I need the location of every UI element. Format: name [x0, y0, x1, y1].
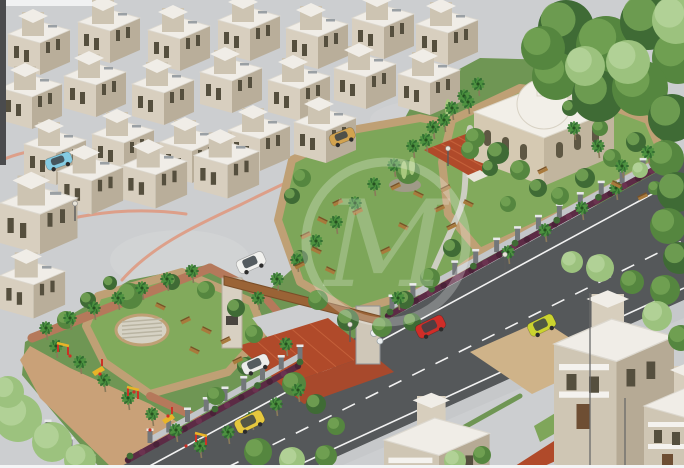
- window: [446, 79, 450, 90]
- window: [234, 164, 238, 176]
- window: [200, 168, 205, 181]
- tree-highlight: [81, 293, 91, 303]
- palm-crown: [411, 144, 414, 147]
- pillar-cap: [240, 376, 247, 379]
- tree-highlight: [208, 388, 219, 399]
- lamp-head: [348, 322, 353, 327]
- tree-highlight: [523, 28, 550, 55]
- window: [300, 134, 305, 146]
- roof-stair: [50, 192, 61, 195]
- pillar-cap: [640, 158, 647, 161]
- play-equipment-dot: [184, 444, 187, 447]
- window: [464, 29, 468, 40]
- window: [274, 92, 279, 104]
- arch-window: [520, 144, 527, 160]
- hedge-bush: [566, 213, 572, 219]
- palm-crown: [450, 106, 453, 109]
- window: [234, 36, 239, 48]
- window: [172, 171, 176, 183]
- window: [248, 77, 252, 88]
- tree-highlight: [567, 48, 592, 73]
- window: [211, 172, 216, 185]
- palm-crown: [466, 100, 469, 103]
- tree-highlight: [198, 282, 209, 293]
- hedge-shrub: [127, 453, 134, 460]
- window: [70, 88, 75, 100]
- pillar-cap: [45, 420, 52, 423]
- gate-statue: [377, 338, 383, 344]
- window: [154, 42, 159, 54]
- window: [276, 135, 280, 146]
- window: [454, 32, 458, 43]
- wall-pillar: [185, 409, 190, 422]
- play-equipment-dot: [98, 372, 101, 375]
- township-aerial-rendering: M: [0, 0, 684, 468]
- window: [94, 38, 99, 50]
- pillar-cap: [598, 181, 605, 184]
- hedge-bush: [153, 441, 159, 447]
- window: [627, 369, 636, 387]
- tree-highlight: [501, 197, 511, 207]
- window: [30, 156, 35, 168]
- balcony-rail: [559, 364, 609, 370]
- page-margin-top: [6, 0, 92, 6]
- tree-highlight: [246, 326, 257, 337]
- hedge-bush: [266, 378, 272, 384]
- palm-crown: [150, 412, 153, 415]
- hedge-bush: [196, 418, 202, 424]
- tree-highlight: [562, 252, 576, 266]
- roof-stair: [268, 121, 277, 124]
- arch-window: [484, 130, 491, 146]
- window: [112, 81, 116, 92]
- hedge-shrub: [512, 240, 519, 247]
- hedge-bush: [482, 259, 488, 265]
- wall-pillar: [148, 430, 153, 443]
- window: [48, 213, 53, 227]
- palm-crown: [226, 430, 229, 433]
- lamp-head: [503, 252, 508, 257]
- tree-highlight: [104, 277, 113, 286]
- wall-pillar: [515, 228, 520, 241]
- window: [40, 160, 45, 172]
- palm-crown: [92, 306, 95, 309]
- watermark-monogram: M: [323, 176, 451, 315]
- tree-highlight: [650, 96, 680, 126]
- play-equipment-dot: [148, 428, 151, 431]
- tree-highlight: [633, 163, 643, 173]
- roof-stair: [374, 59, 383, 62]
- tree-highlight: [445, 451, 459, 465]
- tree-highlight: [34, 424, 59, 449]
- lamp-head: [446, 146, 451, 151]
- window: [186, 38, 190, 49]
- window: [400, 23, 404, 34]
- tree-highlight: [307, 395, 319, 407]
- roof-stair: [240, 63, 249, 66]
- balcony-rail: [388, 458, 432, 464]
- tree-highlight: [644, 302, 663, 321]
- tree-highlight: [228, 300, 239, 311]
- tree-highlight: [474, 447, 485, 458]
- palm-crown: [165, 277, 168, 280]
- palm-crown: [44, 326, 47, 329]
- window: [84, 34, 89, 46]
- hedge-bush: [139, 449, 145, 455]
- window: [14, 46, 19, 58]
- window: [404, 86, 409, 98]
- hedge-shrub: [254, 382, 261, 389]
- window: [238, 80, 242, 91]
- tree-highlight: [652, 276, 671, 295]
- palm-crown: [198, 444, 201, 447]
- tree-highlight: [462, 142, 473, 153]
- window: [60, 209, 65, 223]
- watermark-layer: M: [306, 162, 466, 322]
- window: [206, 84, 211, 96]
- window: [170, 92, 174, 103]
- wall-pillar: [204, 399, 209, 412]
- window: [40, 284, 44, 296]
- tree-highlight: [483, 161, 493, 171]
- wall-pillar: [473, 250, 478, 263]
- pillar-cap: [493, 238, 500, 241]
- palm-crown: [543, 228, 546, 231]
- tree-highlight: [608, 42, 635, 69]
- hedge-shrub: [297, 359, 304, 366]
- roof-stair: [456, 15, 465, 18]
- hedge-shrub: [553, 217, 560, 224]
- pillar-cap: [184, 408, 191, 411]
- window: [647, 362, 656, 380]
- window: [324, 36, 328, 47]
- wall-pillar: [279, 357, 284, 370]
- tree-highlight: [530, 180, 541, 191]
- window: [130, 142, 134, 153]
- palm-crown: [580, 206, 583, 209]
- palm-crown: [275, 277, 278, 280]
- window: [350, 84, 355, 96]
- window: [108, 177, 112, 189]
- window: [116, 30, 120, 41]
- tree-highlight: [621, 271, 636, 286]
- window: [310, 138, 315, 150]
- play-equipment-dot: [166, 414, 169, 417]
- wall-pillar: [557, 205, 562, 218]
- door: [577, 404, 591, 429]
- pillar-cap: [514, 226, 521, 229]
- palm-crown: [140, 286, 143, 289]
- window: [80, 92, 85, 104]
- window: [48, 93, 52, 104]
- window: [266, 138, 270, 149]
- roof-stair: [188, 21, 197, 24]
- window: [567, 374, 577, 390]
- tree-highlight: [66, 445, 86, 465]
- pillar-cap: [472, 249, 479, 252]
- window: [390, 26, 394, 37]
- palm-crown: [116, 296, 119, 299]
- tree-highlight: [576, 169, 588, 181]
- window: [162, 174, 166, 186]
- roof-stair: [118, 13, 127, 16]
- wall-pillar: [599, 182, 604, 195]
- palm-crown: [274, 402, 277, 405]
- window: [8, 218, 14, 233]
- window: [139, 182, 144, 195]
- window: [414, 90, 419, 102]
- balcony-rail: [559, 392, 609, 398]
- window: [17, 292, 22, 305]
- tree-highlight: [652, 209, 674, 231]
- site-plan-canvas: M: [0, 0, 684, 468]
- window: [292, 40, 297, 52]
- palm-crown: [295, 258, 298, 261]
- window: [436, 82, 440, 93]
- tree-highlight: [665, 243, 684, 263]
- pillar-cap: [297, 345, 304, 348]
- balcony-rail: [648, 422, 684, 427]
- window: [196, 35, 200, 46]
- tree-highlight: [627, 133, 639, 145]
- hedge-bush: [238, 394, 244, 400]
- tree-highlight: [552, 188, 563, 199]
- window: [316, 85, 320, 96]
- tree-highlight: [593, 121, 603, 131]
- window: [50, 281, 54, 293]
- hedge-shrub: [212, 406, 219, 413]
- window: [432, 40, 437, 52]
- palm-crown: [431, 125, 434, 128]
- wall-pillar: [298, 346, 303, 359]
- window: [98, 180, 102, 192]
- window: [164, 46, 169, 58]
- window: [148, 100, 153, 112]
- palm-crown: [442, 118, 445, 121]
- window: [24, 50, 29, 62]
- hedge-bush: [524, 236, 530, 242]
- window: [422, 36, 427, 48]
- tree-highlight: [245, 439, 262, 456]
- tree-highlight: [280, 448, 296, 464]
- window: [46, 42, 50, 53]
- window: [672, 432, 680, 445]
- window: [256, 28, 260, 39]
- window: [38, 96, 42, 107]
- palm-crown: [256, 296, 259, 299]
- palm-crown: [620, 164, 623, 167]
- wall-pillar: [494, 239, 499, 252]
- window: [20, 223, 26, 238]
- window: [16, 104, 21, 116]
- window: [358, 30, 363, 42]
- tree-highlight: [285, 189, 295, 199]
- tree-highlight: [466, 129, 478, 141]
- gate-sign: [226, 316, 238, 325]
- pillar-cap: [222, 387, 229, 390]
- palm-crown: [476, 82, 479, 85]
- window: [306, 88, 310, 99]
- window: [180, 89, 184, 100]
- window: [302, 44, 307, 56]
- tree-highlight: [604, 150, 615, 161]
- play-equipment-dot: [68, 354, 71, 357]
- roof-stair: [258, 11, 267, 14]
- roof-stair: [164, 156, 173, 159]
- window: [340, 80, 345, 92]
- window: [138, 96, 143, 108]
- roof-stair: [132, 125, 141, 128]
- palm-crown: [572, 126, 575, 129]
- lamp-head: [73, 201, 78, 206]
- tree-highlight: [488, 143, 502, 157]
- tree-highlight: [649, 182, 658, 191]
- wall-pillar: [241, 378, 246, 391]
- window: [216, 88, 221, 100]
- window: [108, 150, 113, 162]
- window: [368, 34, 373, 46]
- tree-highlight: [328, 418, 339, 429]
- window: [224, 32, 229, 44]
- roof-stair: [308, 71, 317, 74]
- tree-highlight: [294, 170, 305, 181]
- palm-crown: [68, 316, 71, 319]
- palm-crown: [102, 378, 105, 381]
- palm-crown: [296, 388, 299, 391]
- palm-crown: [284, 342, 287, 345]
- palm-crown: [596, 144, 599, 147]
- roof-stair: [172, 75, 181, 78]
- palm-crown: [314, 239, 317, 242]
- window: [382, 73, 386, 84]
- window: [334, 33, 338, 44]
- scan-edge-left: [0, 0, 6, 165]
- window: [654, 430, 662, 443]
- roof-stair: [236, 146, 245, 149]
- roof-stair: [438, 65, 447, 68]
- window: [6, 100, 11, 112]
- window: [102, 84, 106, 95]
- roof-stair: [100, 162, 109, 165]
- play-equipment-dot: [132, 390, 135, 393]
- window: [284, 96, 289, 108]
- hedge-bush: [224, 402, 230, 408]
- window: [6, 288, 11, 301]
- roof-stair: [326, 19, 335, 22]
- pillar-cap: [451, 260, 458, 263]
- hedge-bush: [181, 425, 187, 431]
- palm-crown: [78, 360, 81, 363]
- palm-crown: [190, 269, 193, 272]
- tree-highlight: [659, 174, 684, 199]
- palm-crown: [174, 428, 177, 431]
- palm-crown: [424, 138, 427, 141]
- arch-window: [556, 142, 563, 158]
- window: [372, 76, 376, 87]
- palm-crown: [126, 396, 129, 399]
- tree-highlight: [587, 255, 604, 272]
- tree-highlight: [316, 446, 330, 460]
- palm-crown: [646, 150, 649, 153]
- roof-stair: [48, 25, 57, 28]
- window: [128, 178, 133, 191]
- hedge-shrub: [595, 194, 602, 201]
- window: [126, 27, 130, 38]
- window: [244, 161, 248, 173]
- pillar-cap: [577, 192, 584, 195]
- roof-stair: [42, 266, 51, 269]
- roof-stair: [334, 113, 343, 116]
- roof-stair: [104, 67, 113, 70]
- window: [266, 25, 270, 36]
- pillar-cap: [278, 355, 285, 358]
- roof-stair: [392, 9, 401, 12]
- hedge-shrub: [470, 263, 477, 270]
- pillar-cap: [535, 215, 542, 218]
- window: [56, 39, 60, 50]
- roof-stair: [40, 79, 49, 82]
- roof-stair: [64, 135, 73, 138]
- tree-highlight: [511, 161, 523, 173]
- tree-highlight: [563, 101, 573, 111]
